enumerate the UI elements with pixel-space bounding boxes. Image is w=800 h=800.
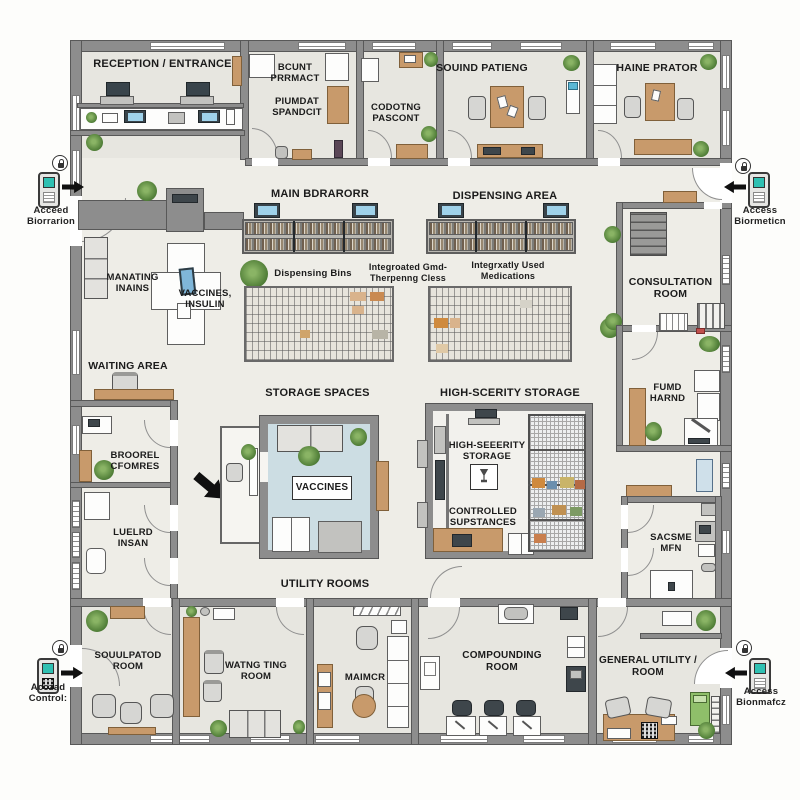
monitor-icon	[186, 82, 210, 96]
window	[722, 55, 730, 89]
label-dispensing-bins: Dispensing Bins	[268, 268, 358, 279]
plant-icon	[645, 422, 662, 441]
window	[150, 42, 225, 50]
room-label-consultation: CONSULTATION ROOM	[618, 276, 723, 301]
equipment-screen	[570, 670, 582, 679]
stock-bin	[547, 481, 557, 489]
window	[722, 345, 730, 373]
window	[315, 735, 360, 743]
shelf-divider	[343, 221, 345, 252]
lock-bubble-icon	[52, 155, 68, 171]
monitor-icon	[352, 203, 378, 218]
annotation-access-bottom-left: Acczad Control:	[14, 682, 82, 704]
stock-bin	[552, 505, 566, 515]
bin-accent	[436, 344, 448, 353]
wall	[245, 158, 732, 166]
plant-icon	[298, 446, 320, 466]
door-opening	[252, 158, 278, 166]
water-cooler-top	[568, 82, 578, 90]
cabinet	[697, 393, 720, 421]
console-screen	[483, 147, 501, 155]
book-row	[429, 238, 573, 251]
laptop-icon	[404, 55, 416, 63]
window	[72, 532, 80, 558]
door-opening	[170, 505, 178, 531]
plant-icon	[693, 141, 709, 157]
room-label-pharmacy-a: BCUNT PRRMACT	[258, 62, 332, 84]
room-label-general-utility: GENERAL UTILITY / ROOM	[593, 655, 703, 679]
desk	[645, 83, 675, 121]
red-item	[696, 328, 705, 334]
door-opening	[598, 158, 620, 166]
door-opening	[704, 202, 722, 209]
stock-bin	[570, 507, 582, 516]
chair	[203, 680, 222, 702]
bed-mark	[668, 582, 675, 591]
exam-table	[361, 58, 379, 82]
vaccines-label: VACCINES	[292, 482, 352, 494]
cabinet	[662, 611, 692, 626]
plant-icon	[421, 126, 437, 142]
lock-bubble-icon	[52, 640, 68, 656]
monitor-screen	[547, 206, 566, 215]
door-opening	[428, 598, 460, 607]
device-screen	[42, 663, 54, 674]
cabinet	[79, 450, 92, 482]
camera-icon	[475, 409, 497, 418]
wall-fixture	[417, 440, 428, 468]
chair	[624, 96, 641, 118]
plant-icon	[186, 606, 197, 617]
wall	[616, 325, 623, 452]
bin-accent	[450, 318, 460, 328]
lab-stool	[452, 700, 472, 716]
plant-icon	[241, 444, 256, 460]
desk	[100, 96, 134, 105]
sink-basin	[504, 607, 528, 620]
wall	[640, 633, 722, 639]
room-label-reception: RECEPTION / ENTRANCE	[85, 58, 240, 71]
bench	[108, 727, 156, 735]
tool-base	[688, 438, 710, 444]
side-table	[200, 607, 210, 616]
door-opening	[621, 505, 628, 529]
device-screen	[699, 525, 711, 534]
step-shelf	[697, 303, 725, 329]
annotation-access-top-left: Acceed Biorrarion	[16, 205, 86, 227]
plant-icon	[604, 226, 621, 243]
monitor-screen	[442, 206, 461, 215]
low-cabinet	[292, 149, 312, 160]
storage-boxes	[659, 313, 688, 331]
plant-icon	[699, 336, 720, 352]
window	[452, 42, 492, 50]
cart	[698, 544, 715, 557]
credenza	[110, 606, 145, 619]
chair	[677, 98, 694, 120]
window	[150, 735, 210, 743]
area-label-main-corridor: MAIN BDRARORR	[255, 188, 385, 201]
room-label-maimcr: MAIMCR	[332, 672, 398, 683]
lab-stool	[484, 700, 504, 716]
chair	[645, 696, 673, 719]
window	[722, 463, 730, 489]
wall-panel	[560, 607, 578, 620]
lab-stool	[516, 700, 536, 716]
bin-accent	[434, 318, 448, 328]
lock-bubble-icon	[736, 640, 752, 656]
equipment-rack	[434, 426, 446, 454]
chair	[468, 96, 486, 120]
label-hs-inner: HIGH-SEEERITY STORAGE	[447, 440, 527, 462]
bin-accent	[352, 306, 364, 314]
wall	[616, 445, 732, 452]
wall-fixture	[417, 502, 428, 528]
bed-pillow	[693, 695, 707, 703]
card-reader-icon	[226, 109, 235, 125]
cabinet	[694, 370, 720, 392]
bench	[94, 389, 174, 400]
monitor-screen	[356, 206, 375, 215]
monitor-icon	[88, 419, 100, 427]
wall	[411, 598, 419, 745]
room-label-luelrd: LUELRD INSAN	[96, 527, 170, 549]
book-row	[245, 238, 391, 251]
window	[440, 735, 488, 743]
room-label-soulpatod: SOUULPATOD ROOM	[88, 650, 168, 672]
pharmacy-floor-plan: VACCINES	[0, 0, 800, 800]
door-opening	[260, 452, 268, 482]
access-device-icon	[38, 172, 60, 208]
equipment-rack	[435, 460, 445, 500]
chair	[226, 463, 243, 482]
window	[72, 95, 80, 135]
counter	[396, 144, 428, 159]
room-label-manating: MANATING INAINS	[95, 272, 170, 294]
door-opening	[632, 325, 656, 332]
door-opening	[143, 598, 171, 607]
wall	[204, 212, 244, 230]
bin-accent	[372, 330, 388, 339]
area-label-utility: UTILITY ROOMS	[265, 578, 385, 591]
window	[722, 255, 730, 285]
bin-accent	[300, 330, 310, 338]
device-keys	[43, 192, 55, 203]
lock-bubble-icon	[735, 158, 751, 174]
window	[72, 500, 80, 528]
monitor-screen	[202, 113, 217, 121]
plant-icon	[86, 134, 103, 151]
lock-shackle-icon	[59, 644, 64, 649]
wall	[78, 200, 175, 230]
window	[722, 110, 730, 146]
qr-screen-icon	[641, 722, 658, 739]
laptop-icon	[452, 534, 472, 547]
mesh-shelf-line	[528, 519, 586, 521]
lock-shackle-icon	[59, 159, 64, 164]
wall	[70, 400, 178, 407]
stock-bin	[533, 508, 545, 517]
label-frequently-used: Integrxatly Used Medications	[458, 260, 558, 281]
cabinet	[84, 492, 110, 520]
armchair	[356, 626, 378, 650]
wall	[172, 598, 180, 745]
appliance-icon	[318, 672, 331, 687]
counter	[183, 617, 200, 717]
shelf-divider	[293, 221, 295, 252]
door-panel	[696, 459, 713, 492]
door-opening	[598, 598, 626, 607]
shelf	[353, 606, 401, 616]
plant-icon	[240, 260, 268, 288]
monitor-icon	[438, 203, 464, 218]
room-label-fumd: FUMD HARND	[640, 382, 695, 404]
monitor-screen	[128, 113, 143, 121]
window	[372, 42, 416, 50]
window	[523, 735, 565, 743]
door-opening	[448, 158, 470, 166]
stock-bin	[575, 480, 585, 489]
cabinet	[318, 521, 362, 553]
armchair	[120, 702, 142, 724]
lock-shackle-icon	[743, 644, 748, 649]
device-screen	[753, 177, 765, 188]
shelf-divider	[475, 221, 477, 252]
plant-icon	[350, 428, 367, 446]
appliance-icon	[318, 692, 331, 710]
plant-icon	[86, 610, 108, 632]
book-row	[245, 222, 391, 235]
room-label-watng: WATNG TING ROOM	[213, 660, 299, 682]
plant-icon	[210, 720, 227, 737]
wall-outer-left	[70, 40, 82, 745]
pass-through-window	[424, 662, 436, 676]
window	[298, 42, 346, 50]
window	[722, 530, 730, 554]
book-row	[429, 222, 573, 235]
room-label-compounding: COMPOUNDING ROOM	[440, 650, 564, 674]
fixture	[275, 146, 288, 159]
access-device-icon	[748, 172, 770, 208]
monitor-icon	[106, 82, 130, 96]
label-vaccines-insulin: VACCINES, INSULIN	[168, 288, 242, 310]
wall	[306, 598, 314, 745]
plant-icon	[696, 610, 716, 631]
door-opening	[621, 548, 628, 572]
wall	[616, 202, 623, 332]
room-label-pharmacy-b: PIUMDAT SPANDCIT	[260, 96, 334, 118]
armchair	[150, 694, 174, 718]
room-label-coding: CODOTNG PASCONT	[360, 102, 432, 124]
door-opening	[368, 158, 390, 166]
door-opening	[170, 558, 178, 584]
stock-bin	[534, 534, 546, 543]
device-keys	[753, 192, 765, 203]
sink-icon	[86, 548, 106, 574]
wall	[70, 482, 178, 488]
room-label-haine-prator: HAINE PRATOR	[602, 62, 712, 74]
monitor-icon	[254, 203, 280, 218]
lock-shackle-icon	[742, 162, 747, 167]
cabinet	[391, 620, 407, 634]
room-label-sound-patient: SOUIND PATIENG	[427, 62, 537, 74]
monitor-screen	[258, 206, 277, 215]
bin-accent	[370, 292, 384, 301]
console-screen	[521, 147, 535, 155]
annotation-access-top-right: Access Biormeticn	[726, 205, 794, 227]
door-opening	[170, 420, 178, 446]
desk	[180, 96, 214, 105]
window	[688, 42, 714, 50]
chair	[528, 96, 546, 120]
refrigerator-icon	[272, 517, 310, 552]
area-label-waiting: WAITING AREA	[73, 360, 183, 372]
cabinet	[701, 503, 716, 516]
plant-icon	[137, 181, 157, 201]
bin-accent	[520, 300, 532, 308]
device-screen	[43, 177, 55, 188]
window	[520, 42, 562, 50]
shelf	[663, 191, 697, 203]
camera-base	[468, 418, 500, 425]
monitor-icon	[543, 203, 569, 218]
shelf-divider	[525, 221, 527, 252]
stock-bin	[532, 478, 545, 488]
window	[72, 562, 80, 590]
door-panel	[376, 461, 389, 511]
room-label-sacsme: SACSME MFN	[643, 532, 699, 554]
stock-bin	[560, 477, 574, 488]
door-opening	[70, 645, 82, 687]
credenza	[634, 139, 692, 155]
pos-monitor-icon	[124, 110, 146, 123]
annotation-access-bottom-right: Access Bionmafcz	[726, 686, 796, 708]
bin-accent	[350, 292, 366, 301]
wall	[715, 496, 722, 603]
plant-icon	[293, 720, 305, 734]
label-controlled: CONTROLLED SUPSTANCES	[443, 506, 523, 528]
window	[610, 42, 656, 50]
room-label-broorel: BROOREL CFOMRES	[98, 450, 172, 472]
pos-monitor-icon	[198, 110, 220, 123]
keypad-icon	[168, 112, 185, 124]
area-label-high-security: HIGH-SCERITY STORAGE	[435, 387, 585, 400]
sofa	[229, 710, 281, 738]
plant-icon	[563, 55, 580, 71]
area-label-storage-spaces: STORAGE SPACES	[255, 387, 380, 400]
armchair	[92, 694, 116, 718]
table	[213, 608, 235, 620]
shelf	[567, 636, 585, 658]
paper-tray	[102, 113, 118, 123]
door-opening	[276, 598, 304, 607]
round-table	[352, 694, 376, 718]
device-screen	[754, 663, 766, 674]
plant-icon	[698, 722, 715, 739]
wall	[621, 496, 722, 503]
server-cabinet	[630, 212, 667, 256]
label-integrated-class: Integroated Gmd- Therpenng Cless	[358, 262, 458, 283]
faucet-icon	[701, 563, 716, 572]
plant-icon	[86, 112, 97, 123]
terminal-icon	[172, 194, 198, 203]
mesh-shelf-line	[528, 449, 586, 451]
keyboard-icon	[607, 728, 631, 739]
vase-icon	[334, 140, 343, 158]
area-label-dispensing: DISPENSING AREA	[440, 190, 570, 203]
